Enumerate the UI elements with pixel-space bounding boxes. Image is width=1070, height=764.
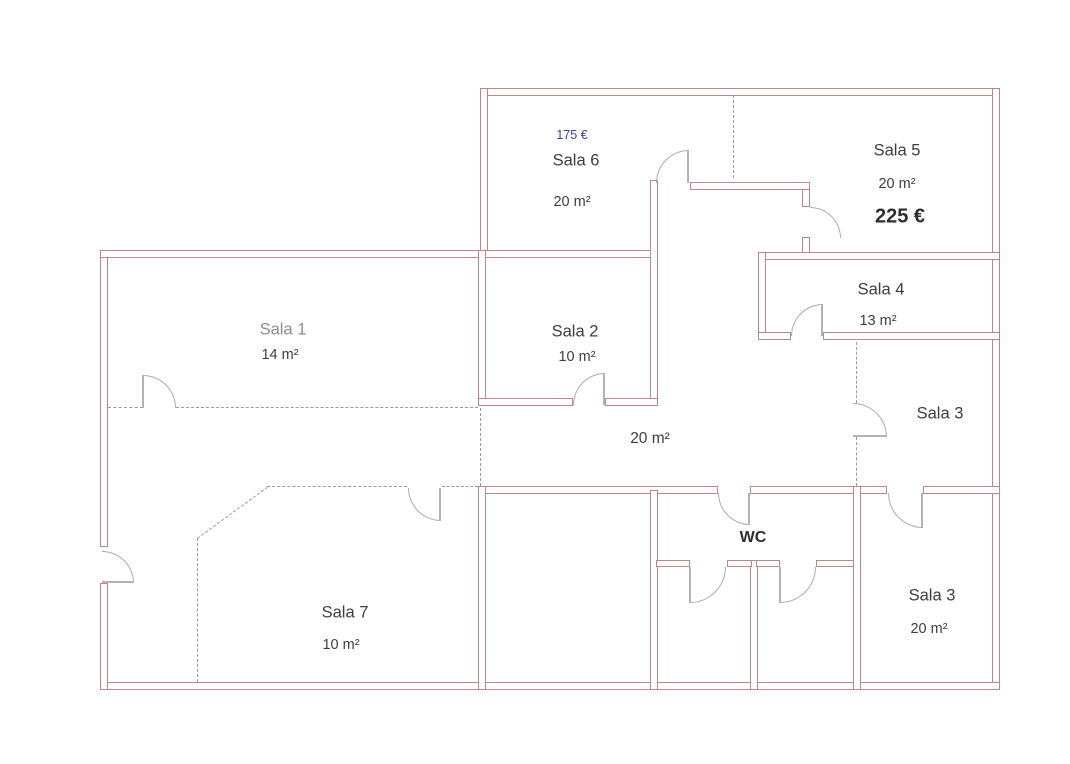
wall-corridor-bottom-left — [478, 486, 718, 494]
entrance-left-door-arc — [102, 551, 134, 583]
dashed-sala3-mid-boundary-lower — [856, 437, 857, 486]
wall-sala6-bottom — [480, 250, 658, 258]
sala2-door-leaf — [603, 373, 605, 405]
sala5-area: 20 m² — [878, 176, 915, 192]
sala7-door-leaf — [439, 488, 441, 521]
wall-sala4-top — [758, 252, 1000, 260]
dashed-sala3-mid-boundary-upper — [856, 342, 857, 403]
sala3-bottom-door-arc — [888, 493, 923, 528]
dashed-sala1-boundary-right — [176, 407, 478, 408]
wall-stall-top-3 — [756, 560, 780, 567]
sala3-middle-door-arc — [853, 403, 887, 437]
wall-left-exterior-lower — [100, 583, 108, 690]
sala3-middle-door-leaf — [853, 435, 887, 437]
wall-stall-divider — [750, 560, 758, 690]
sala3-bottom-area: 20 m² — [910, 621, 947, 637]
wc-hall-door-arc — [718, 493, 750, 525]
sala3-bottom-name: Sala 3 — [909, 587, 956, 606]
dashed-sala7-boundary-diagonal — [197, 487, 268, 539]
sala4-name: Sala 4 — [858, 281, 905, 300]
sala6-area: 20 m² — [553, 194, 590, 210]
wall-top-exterior — [480, 88, 1000, 96]
wall-stall-top-2 — [727, 560, 752, 567]
wall-bottom-exterior — [100, 682, 1000, 690]
wc-stall-left-door-leaf — [689, 567, 691, 603]
sala7-area: 10 m² — [322, 637, 359, 653]
wc-stall-left-door-arc — [690, 567, 726, 603]
floor-plan: 175 € Sala 6 20 m² Sala 5 20 m² 225 € Sa… — [0, 0, 1070, 764]
wc-name: WC — [740, 529, 767, 547]
sala6-price: 175 € — [556, 128, 587, 142]
wall-right-exterior — [992, 88, 1000, 690]
sala7-door-arc — [408, 488, 441, 521]
wall-sala4-bottom-right — [823, 332, 1000, 340]
wall-corridor-bottom-right — [923, 486, 1000, 494]
dashed-sala7-boundary-left — [197, 538, 198, 682]
wall-stall-top-4 — [816, 560, 854, 567]
sala5-door-arc — [810, 207, 841, 238]
sala5-name: Sala 5 — [874, 142, 921, 161]
wall-wc-right — [853, 486, 861, 690]
sala3-bottom-door-leaf — [921, 493, 923, 528]
wc-stall-right-door-arc — [780, 567, 816, 603]
dashed-corridor-left-boundary — [480, 408, 481, 486]
wall-sala4-bottom-left — [758, 332, 791, 340]
wall-sala7-right — [478, 486, 486, 690]
wall-corridor-bottom-mid — [750, 486, 887, 494]
wall-sala2-bottom-left — [478, 398, 573, 406]
sala2-door-arc — [573, 373, 605, 405]
sala4-door-leaf — [821, 304, 823, 336]
entrance-left-door-leaf — [102, 581, 134, 583]
sala1-door-arc — [143, 375, 176, 408]
wall-sala2-bottom-right — [605, 398, 658, 406]
wall-sala1-sala2-divider — [478, 250, 486, 406]
sala4-area: 13 m² — [859, 313, 896, 329]
corridor-area: 20 m² — [630, 430, 670, 448]
sala3-middle-name: Sala 3 — [917, 405, 964, 424]
wall-entry-hall-top — [690, 182, 810, 190]
sala7-name: Sala 7 — [322, 604, 369, 623]
dashed-sala1-boundary-left — [108, 407, 143, 408]
sala1-area: 14 m² — [261, 347, 298, 363]
wc-stall-right-door-leaf — [779, 567, 781, 603]
dashed-sala7-boundary-top-right — [442, 486, 478, 487]
sala6-name: Sala 6 — [553, 152, 600, 171]
sala4-door-arc — [791, 304, 823, 336]
wall-stall-top-1 — [656, 560, 690, 567]
wall-topblock-left — [480, 88, 488, 258]
wall-sala1-top — [100, 250, 486, 258]
sala6-door-leaf — [687, 150, 689, 183]
sala1-door-leaf — [142, 375, 144, 408]
sala2-area: 10 m² — [558, 349, 595, 365]
wall-sala5-left-upper — [802, 189, 810, 207]
dashed-sala5-boundary — [733, 95, 734, 178]
dashed-sala7-boundary-top — [267, 486, 407, 487]
sala2-name: Sala 2 — [552, 323, 599, 342]
sala5-price: 225 € — [875, 206, 925, 229]
wall-left-exterior-upper — [100, 250, 108, 547]
wall-sala2-right — [650, 180, 658, 406]
sala6-door-arc — [656, 150, 689, 183]
wall-wc-left — [650, 490, 658, 690]
wall-sala4-left — [758, 252, 766, 340]
wc-hall-door-leaf — [748, 493, 750, 525]
sala1-name: Sala 1 — [260, 321, 307, 340]
